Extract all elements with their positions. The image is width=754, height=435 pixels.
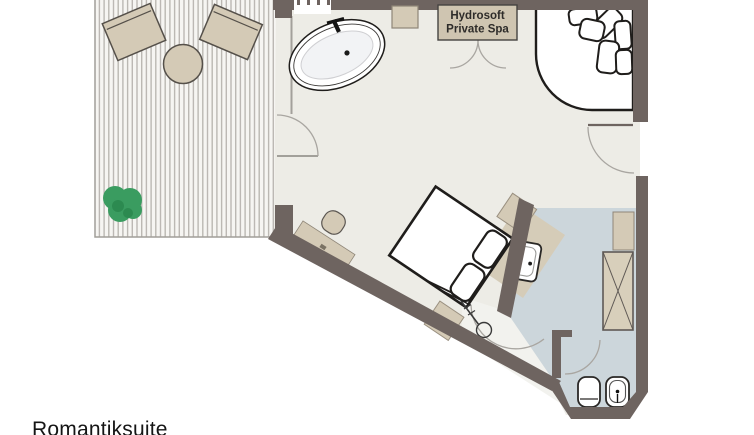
spa-cabin-label-line1: Hydrosoft: [450, 10, 504, 22]
bidet: [578, 377, 600, 407]
plant-leaf-dark: [123, 208, 133, 218]
terrace-table: [164, 45, 203, 84]
window-tick: [317, 0, 320, 5]
wall-wc-partition-top: [552, 330, 572, 337]
bath-stool: [392, 6, 418, 28]
spa-cabin: Hydrosoft Private Spa: [438, 5, 517, 40]
floorplan-title: Romantiksuite: [32, 418, 168, 435]
wall-wc-partition: [552, 330, 561, 378]
toilet-dot: [616, 390, 620, 394]
plant-leaf-dark: [112, 200, 124, 212]
terrace: [95, 0, 278, 237]
window-notch: [294, 0, 331, 14]
daybed-cushion: [616, 50, 633, 75]
spa-cabin-label-line2: Private Spa: [446, 24, 509, 36]
floorplan-canvas: Hydrosoft Private Spa Romantiksuite: [0, 0, 754, 435]
wardrobe: [603, 252, 633, 330]
window-tick: [297, 0, 300, 5]
floorplan-svg: Hydrosoft Private Spa: [0, 0, 754, 435]
daybed-cushion: [578, 18, 606, 43]
window-tick: [307, 0, 310, 5]
cabinet: [613, 212, 634, 250]
wall-top-left-corner: [275, 0, 292, 18]
wall-right-upper: [633, 0, 648, 122]
window-tick: [327, 0, 330, 5]
